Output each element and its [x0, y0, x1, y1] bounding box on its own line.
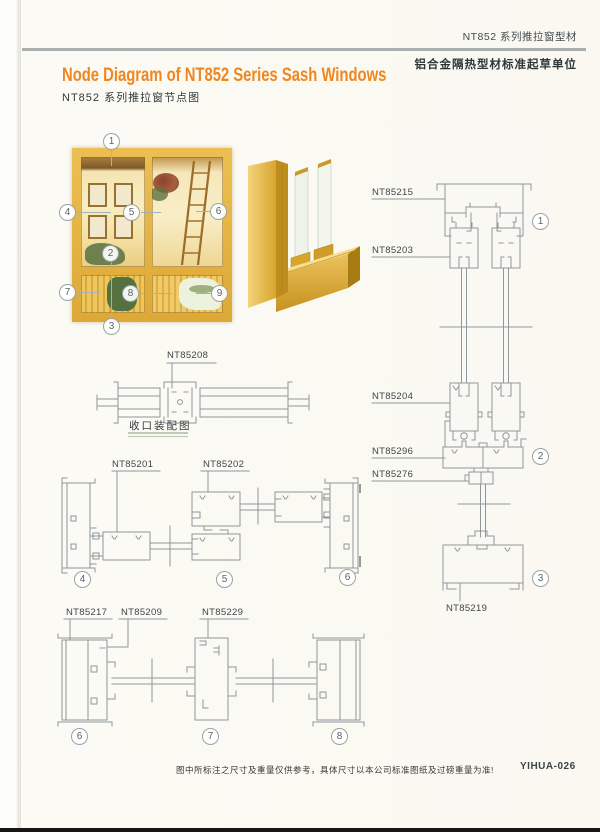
section-callout-2: 2: [532, 448, 549, 465]
page-code: YIHUA-026: [520, 761, 576, 772]
page-subtitle: NT852 系列推拉窗节点图: [62, 89, 200, 105]
part-label-sill: NT85219: [446, 603, 487, 614]
leader-line: [141, 212, 161, 213]
part-label-sash-bottom: NT85204: [372, 391, 413, 402]
window-photo: [72, 148, 232, 322]
leader-line: [140, 293, 172, 294]
ink-mark: [359, 484, 361, 493]
ink-mark: [359, 556, 361, 567]
leader-line: [111, 150, 112, 166]
section-callout-5: 5: [216, 571, 233, 588]
profile-3d-render: [238, 150, 362, 322]
leader-line: [196, 211, 210, 212]
part-label-jamb-bottom: NT85217: [66, 607, 107, 618]
section-callout-7: 7: [202, 728, 219, 745]
callout-6: 6: [210, 203, 227, 220]
callout-1: 1: [103, 133, 120, 150]
section-callout-6-mid: 6: [339, 569, 356, 586]
picture-frame: [88, 215, 107, 239]
paper-crease: [20, 0, 21, 832]
callout-5: 5: [123, 204, 140, 221]
leader-line: [77, 292, 100, 293]
leader-line: [77, 212, 111, 213]
page-title: Node Diagram of NT852 Series Sash Window…: [62, 65, 386, 87]
header-organization-label: 铝合金隔热型材标准起草单位: [415, 56, 578, 72]
header-series-label: NT852 系列推拉窗型材: [463, 29, 577, 44]
callout-3: 3: [103, 318, 120, 335]
leader-line: [196, 293, 211, 294]
section-callout-4: 4: [74, 571, 91, 588]
section-callout-6-bottom: 6: [71, 728, 88, 745]
callout-2: 2: [102, 245, 119, 262]
part-label-sash-top: NT85203: [372, 245, 413, 256]
callout-4: 4: [59, 204, 76, 221]
leader-line: [111, 262, 112, 318]
section-callout-3: 3: [532, 570, 549, 587]
scan-edge: [0, 0, 20, 832]
closing-assembly-caption: 收口装配图: [129, 418, 192, 433]
footer-note: 图中所标注之尺寸及重量仅供参考，具体尺寸以本公司标准图纸及过磅重量为准!: [176, 764, 494, 776]
part-label-closing: NT85208: [167, 350, 208, 361]
callout-9: 9: [211, 285, 228, 302]
catalog-page: NT852 系列推拉窗型材 铝合金隔热型材标准起草单位 Node Diagram…: [0, 0, 600, 832]
scan-bottom-edge: [0, 828, 600, 832]
callout-8: 8: [122, 285, 139, 302]
part-label-frame-jamb: NT85201: [112, 459, 153, 470]
header-rule: [22, 48, 586, 51]
part-label-head-frame: NT85215: [372, 187, 413, 198]
part-label-meeting-stile-mid: NT85202: [203, 459, 244, 470]
section-callout-8: 8: [331, 728, 348, 745]
part-label-glazing-adapter: NT85209: [121, 607, 162, 618]
callout-7: 7: [59, 284, 76, 301]
section-callout-1: 1: [532, 213, 549, 230]
part-label-meeting-stile-bottom: NT85229: [202, 607, 243, 618]
picture-frame: [88, 183, 107, 207]
